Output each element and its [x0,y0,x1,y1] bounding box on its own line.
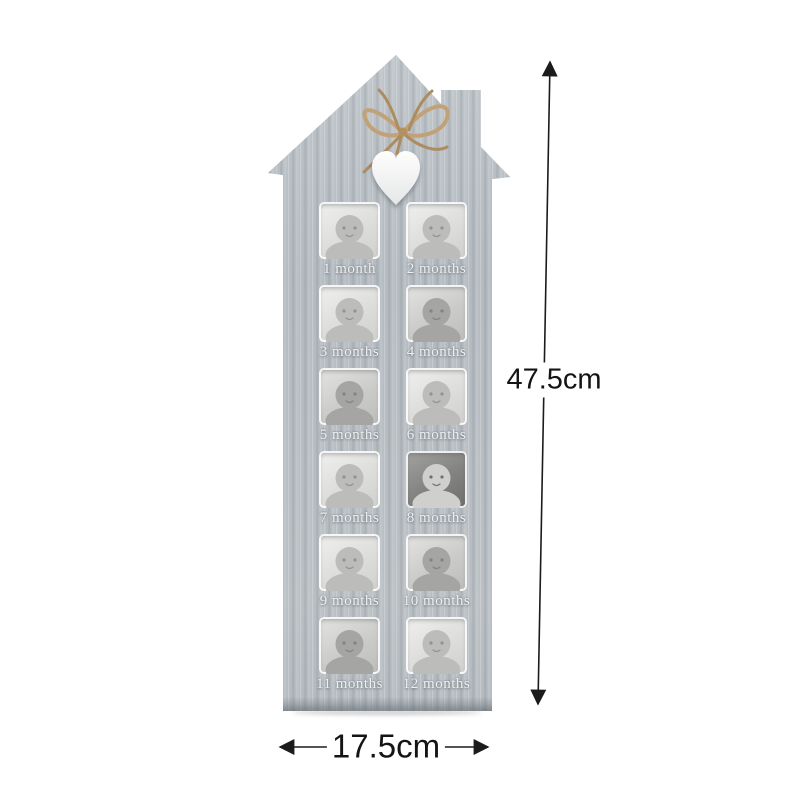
month-label: 3 months [320,344,379,361]
baby-photo [406,617,467,674]
heart-ornament-icon [372,150,420,207]
baby-photo [319,285,380,342]
baby-silhouette-icon [319,368,380,425]
baby-silhouette-icon [319,534,380,591]
month-label: 12 months [403,676,470,693]
photo-slot: 10 months [406,534,467,591]
frame-shadow [292,710,482,715]
baby-silhouette-icon [319,285,380,342]
baby-photo [406,368,467,425]
month-label: 5 months [320,427,379,444]
photo-slot: 5 months [319,368,380,425]
baby-silhouette-icon [406,534,467,591]
month-label: 11 months [316,676,383,693]
width-dimension-label: 17.5cm [327,727,445,766]
month-label: 6 months [407,427,466,444]
baby-photo [319,368,380,425]
baby-photo [406,451,467,508]
baby-photo [319,534,380,591]
photo-slot: 9 months [319,534,380,591]
month-label: 9 months [320,593,379,610]
baby-silhouette-icon [406,617,467,674]
baby-silhouette-icon [406,368,467,425]
photo-slot: 2 months [406,202,467,259]
height-dimension-label: 47.5cm [501,363,606,398]
baby-silhouette-icon [319,202,380,259]
baby-silhouette-icon [319,451,380,508]
baby-silhouette-icon [406,451,467,508]
baby-photo [406,202,467,259]
product-image: 1 month 2 months 3 months 4 months 5 mon [0,0,800,800]
photo-slot: 7 months [319,451,380,508]
photo-slot: 11 months [319,617,380,674]
baby-photo [319,451,380,508]
baby-photo [406,534,467,591]
photo-grid: 1 month 2 months 3 months 4 months 5 mon [319,202,467,674]
month-label: 2 months [407,261,466,278]
baby-photo [319,617,380,674]
baby-silhouette-icon [319,617,380,674]
photo-slot: 6 months [406,368,467,425]
baby-silhouette-icon [406,202,467,259]
frame-bottom-edge [260,697,520,711]
month-label: 1 month [323,261,376,278]
photo-slot: 12 months [406,617,467,674]
month-label: 7 months [320,510,379,527]
photo-slot: 4 months [406,285,467,342]
month-label: 10 months [403,593,470,610]
photo-slot: 3 months [319,285,380,342]
photo-slot: 8 months [406,451,467,508]
baby-silhouette-icon [406,285,467,342]
baby-photo [406,285,467,342]
baby-photo [319,202,380,259]
photo-slot: 1 month [319,202,380,259]
month-label: 8 months [407,510,466,527]
month-label: 4 months [407,344,466,361]
